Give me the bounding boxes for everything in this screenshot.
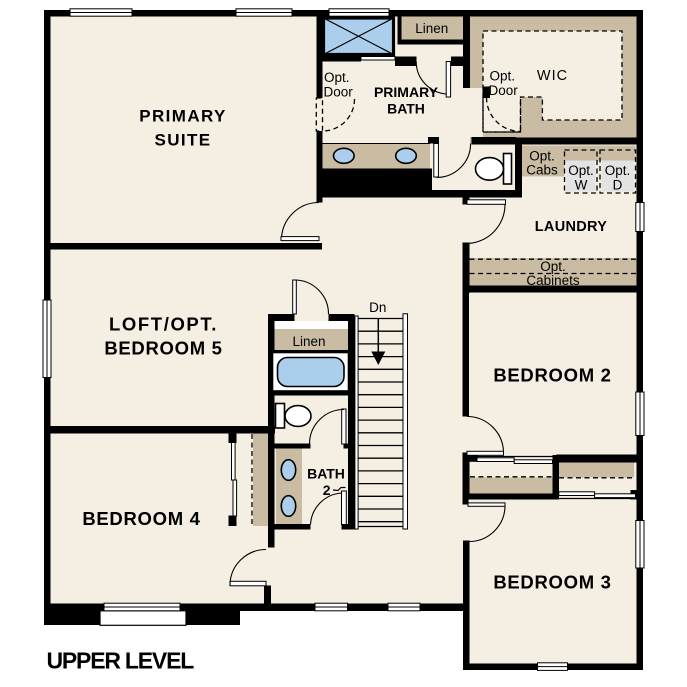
svg-text:2: 2 — [323, 482, 331, 498]
svg-text:W: W — [575, 178, 588, 193]
svg-text:Linen: Linen — [415, 21, 448, 36]
svg-text:BATH: BATH — [307, 465, 345, 481]
svg-text:Opt.: Opt. — [324, 70, 350, 85]
svg-text:Opt.: Opt. — [490, 69, 516, 84]
svg-text:BATH: BATH — [387, 101, 425, 117]
svg-text:Opt.: Opt. — [540, 259, 566, 274]
svg-text:Door: Door — [489, 83, 519, 98]
svg-text:PRIMARY: PRIMARY — [139, 107, 227, 126]
svg-text:BEDROOM 3: BEDROOM 3 — [493, 572, 611, 593]
svg-text:SUITE: SUITE — [154, 130, 211, 149]
svg-text:PRIMARY: PRIMARY — [374, 84, 439, 100]
svg-text:Opt.: Opt. — [568, 163, 594, 178]
svg-text:BEDROOM 5: BEDROOM 5 — [104, 338, 222, 359]
svg-text:Cabs: Cabs — [526, 163, 558, 178]
svg-text:Dn: Dn — [369, 300, 386, 315]
svg-text:WIC: WIC — [537, 68, 568, 84]
svg-text:Linen: Linen — [292, 334, 325, 349]
svg-text:LOFT/OPT.: LOFT/OPT. — [109, 314, 218, 335]
svg-text:Opt.: Opt. — [605, 163, 631, 178]
svg-text:BEDROOM 2: BEDROOM 2 — [493, 365, 611, 386]
svg-text:D: D — [613, 178, 623, 193]
svg-text:Door: Door — [324, 85, 354, 100]
svg-text:UPPER LEVEL: UPPER LEVEL — [47, 648, 195, 674]
svg-text:LAUNDRY: LAUNDRY — [535, 219, 607, 235]
svg-text:Opt.: Opt. — [529, 149, 555, 164]
svg-text:BEDROOM 4: BEDROOM 4 — [82, 508, 200, 529]
